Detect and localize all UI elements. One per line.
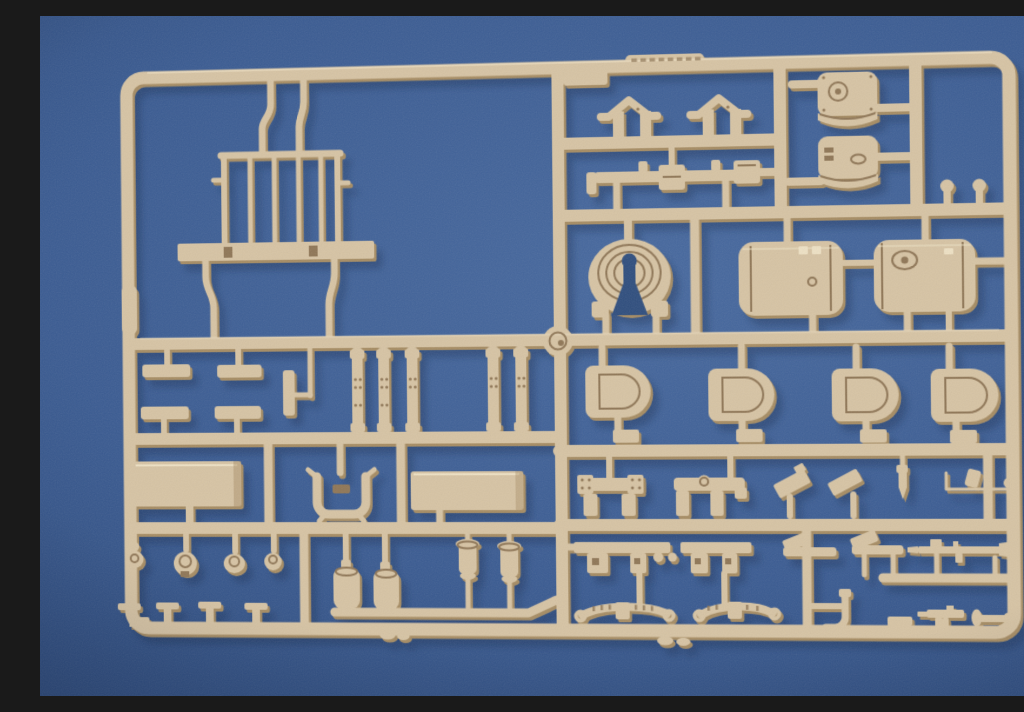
sprue-photo xyxy=(40,16,1024,696)
sprue-perspective-wrapper xyxy=(52,16,1024,696)
sprue-illustration xyxy=(52,16,1024,696)
